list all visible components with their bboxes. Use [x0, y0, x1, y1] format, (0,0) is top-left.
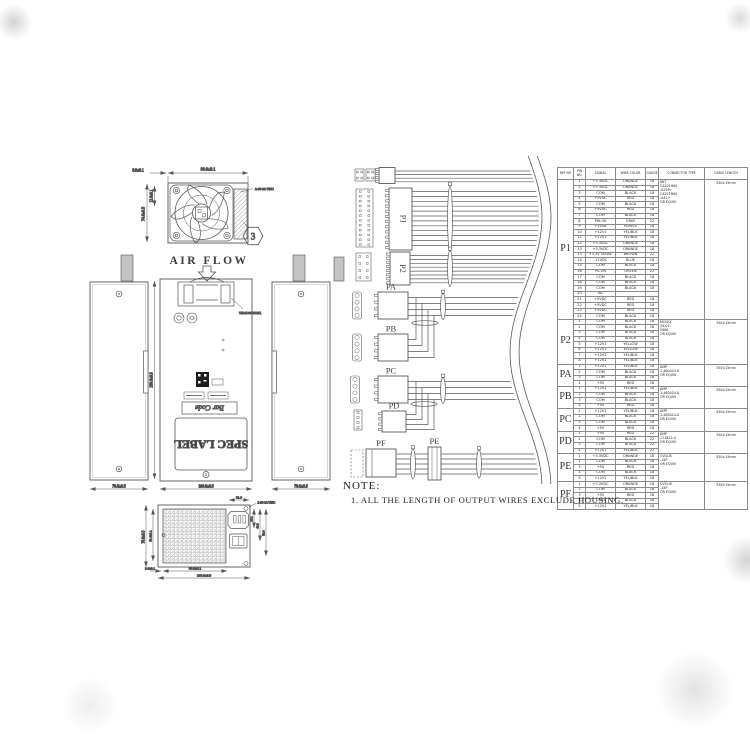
pin-cavity: [372, 177, 374, 179]
pin-cavity: [368, 244, 370, 246]
note-text: 1. ALL THE LENGTH OF OUTPUT WIRES EXCLUD…: [351, 495, 643, 505]
pin-cavity: [353, 391, 357, 395]
cable-tie-knot: [448, 247, 451, 250]
pin-cavity: [357, 411, 359, 413]
pin-cavity: [355, 293, 359, 297]
connector-p1-aux: [379, 168, 395, 184]
ref-cell-PD: PD: [558, 431, 574, 453]
pin-cavity: [359, 205, 361, 207]
connector-front-view: [353, 334, 362, 361]
connector-label-pd: PD: [389, 401, 400, 411]
svg-text:3: 3: [251, 232, 256, 242]
pin-tooth: [386, 200, 390, 202]
pin-cavity: [359, 234, 361, 236]
connector-front-view: [351, 376, 360, 403]
dim-rear-b1: 8.0±0.1: [145, 567, 155, 571]
qr-code: [196, 372, 209, 387]
dim-rear-r3: 52.0: [261, 530, 265, 536]
dim-length: 190.0±0.5: [150, 372, 154, 387]
pin-cavity: [366, 277, 368, 279]
pin-cavity: [359, 200, 361, 202]
barcode-box: Bar Code: [182, 402, 237, 414]
dim-fan-offset: 6.0±0.1: [132, 169, 144, 173]
pin-tooth: [376, 172, 380, 174]
cable-tie: [411, 402, 437, 407]
ac-inlet: [228, 512, 249, 529]
pin-tooth: [386, 246, 390, 248]
ref-cell-PB: PB: [558, 386, 574, 408]
pin-cavity: [356, 177, 358, 179]
vent-grille: [163, 509, 226, 563]
connector-label-p2: P2: [398, 264, 407, 272]
pin-cavity: [368, 220, 370, 222]
pin-tooth: [387, 261, 391, 263]
pin-cavity: [367, 177, 369, 179]
pin-cavity: [359, 239, 361, 241]
vent-hatch-area: [234, 189, 247, 239]
pin-tooth: [375, 301, 379, 303]
safety-mark-circles: [174, 313, 197, 323]
pin-cavity: [355, 342, 359, 346]
dim-rear-h2: 51.6±0.1: [148, 530, 152, 542]
cable-tie: [441, 294, 446, 320]
pin-cavity: [361, 171, 363, 173]
pin-cavity: [357, 426, 359, 428]
flange-stub: [334, 257, 344, 281]
drawing-sheet: 80.0±0.1 6.0±0.1 74.0±0.5 12.0±0.1 2-#6-…: [0, 0, 750, 750]
pin-tooth: [379, 418, 383, 420]
pin-tooth: [375, 378, 379, 380]
loom-break-line: [519, 156, 551, 484]
pin-tooth: [386, 226, 390, 228]
pin-tooth: [375, 385, 379, 387]
pin-tooth: [386, 195, 390, 197]
pin-cavity: [368, 191, 370, 193]
pin-tooth: [386, 205, 390, 207]
cable-length-cell: 350±15mm: [705, 409, 748, 431]
wiring-harness: P1P2PAPBPCPDPFPE: [351, 156, 552, 484]
pin-cavity: [359, 220, 361, 222]
pin-cavity: [353, 398, 357, 402]
barcode-label: Bar Code: [194, 404, 224, 413]
pin-tooth: [375, 294, 379, 296]
cable-tie-knot: [441, 374, 444, 377]
dim-right-width: 70.0±0.5: [294, 484, 308, 488]
pin-tooth: [379, 423, 383, 425]
pin-tooth: [376, 168, 380, 170]
connector-type-cell: CVILUX-15POR EQUIV: [659, 482, 705, 510]
pin-cavity: [368, 215, 370, 217]
pin-cavity: [355, 349, 359, 353]
pin-tooth: [375, 350, 379, 352]
airflow-label: AIR FLOW: [169, 255, 248, 267]
connector-front-view: [354, 410, 362, 430]
connector-front-view: [356, 189, 373, 247]
pin-cavity: [368, 224, 370, 226]
pin-tooth: [379, 428, 383, 430]
connector-type-cell: CVILUX-15POR EQUIV: [659, 454, 705, 482]
fan-screw-note: 2-#6-32 UNC: [255, 187, 274, 191]
pin-tooth: [387, 278, 391, 280]
pin-cavity: [355, 356, 359, 360]
cable-length-cell: 350±15mm: [705, 386, 748, 408]
cable-tie: [448, 186, 453, 252]
pin-tooth: [375, 399, 379, 401]
pin-cavity: [357, 421, 359, 423]
column-header: CONNECTOR TYPE: [659, 168, 705, 180]
ref-cell-P2: P2: [558, 319, 574, 364]
ref-cell-PC: PC: [558, 409, 574, 431]
pin-cavity: [368, 234, 370, 236]
strain-relief-label: TBT3P6SCF4N1: [239, 311, 262, 315]
dim-rear-r2: 43.9: [255, 523, 259, 529]
side-views: TBT3P6SCF4N1: [90, 255, 344, 489]
pin-tooth: [386, 231, 390, 233]
side-view-center: TBT3P6SCF4N1: [160, 278, 261, 482]
pin-tooth: [376, 176, 380, 178]
connector-label-p1: P1: [399, 215, 408, 223]
pin-cavity: [372, 171, 374, 173]
loom-break-line: [510, 156, 542, 484]
pin-tooth: [375, 308, 379, 310]
pin-cell: 18: [646, 504, 659, 510]
pin-cavity: [355, 300, 359, 304]
note-label: NOTE:: [343, 480, 643, 492]
pin-cavity: [359, 256, 361, 258]
pin-cavity: [355, 307, 359, 311]
side-notch: [144, 351, 149, 393]
pin-tooth: [387, 257, 391, 259]
cable-tie-knot: [448, 183, 451, 186]
side-view-right: [272, 282, 330, 480]
pin-tooth: [376, 180, 380, 182]
pin-cavity: [368, 229, 370, 231]
pin-cavity: [359, 215, 361, 217]
column-header: WIRE COLOR: [616, 168, 646, 180]
connector-type-cell: AMP1-480424-0OR EQUIV: [659, 409, 705, 431]
cable-length-cell: 350±15mm: [705, 454, 748, 482]
pin-cavity: [368, 239, 370, 241]
pin-cavity: [359, 263, 361, 265]
pin-cavity: [359, 191, 361, 193]
side-notch: [272, 351, 277, 393]
pin-tooth: [375, 392, 379, 394]
drawing-note: NOTE: 1. ALL THE LENGTH OF OUTPUT WIRES …: [343, 480, 643, 505]
pin-tooth: [387, 274, 391, 276]
connector-pe: [428, 447, 441, 480]
pin-tooth: [375, 315, 379, 317]
connector-pb: [378, 334, 408, 361]
pin-cavity: [367, 171, 369, 173]
connector-pd: [382, 411, 406, 432]
pin-cavity: [368, 210, 370, 212]
connector-pf: [366, 449, 396, 477]
fan-top-view: 80.0±0.1 6.0±0.1 74.0±0.5 12.0±0.1 2-#6-…: [132, 167, 274, 245]
pin-cavity: [361, 177, 363, 179]
pin-tooth: [386, 236, 390, 238]
side-view-dimensions: [90, 281, 330, 489]
connector-front-view: [366, 169, 375, 181]
connector-label-pe: PE: [430, 436, 440, 446]
spec-label: SPEC LABEL: [174, 438, 248, 452]
cable-tie: [441, 378, 446, 404]
pin-cavity: [366, 263, 368, 265]
pin-cavity: [366, 256, 368, 258]
pin-cavity: [353, 384, 357, 388]
connector-type-cell: AMP1-480424-0OR EQUIV: [659, 364, 705, 386]
connector-label-pa: PA: [386, 282, 397, 292]
connector-type-cell: MOLEX39-01-2080OR EQUIV: [659, 319, 705, 364]
pin-tooth: [379, 413, 383, 415]
column-header: GAUGE: [646, 168, 659, 180]
ref-cell-P1: P1: [558, 180, 574, 320]
pin-cavity: [359, 270, 361, 272]
flange-stub: [121, 255, 133, 281]
pin-cavity: [368, 205, 370, 207]
connector-pc: [378, 376, 408, 403]
side-view-left: [90, 282, 148, 480]
dim-fan-inner: 12.0±0.1: [150, 189, 154, 202]
spec-label-box: SPEC LABEL: [174, 418, 248, 470]
cable-length-cell: 350±15mm: [705, 364, 748, 386]
cable-length-cell: 350±15mm: [705, 180, 748, 320]
connector-type-cell: AMP171822-4OR EQUIV: [659, 431, 705, 453]
dim-rear-b3: 100.0±0.5: [197, 574, 211, 578]
pin-cavity: [366, 270, 368, 272]
cable-tie-knot: [411, 446, 414, 449]
pin-cavity: [359, 277, 361, 279]
pin-tooth: [386, 215, 390, 217]
connector-front-view: [355, 169, 364, 181]
connector-front-view: [356, 253, 371, 281]
power-switch: [230, 534, 248, 548]
cable-length-cell: 350±15mm: [705, 482, 748, 510]
pin-tooth: [375, 343, 379, 345]
pin-cavity: [359, 244, 361, 246]
connector-type-cell: AMP1-480424-0OR EQUIV: [659, 386, 705, 408]
pin-cavity: [368, 200, 370, 202]
dim-rear-h: 70.0±0.5: [141, 530, 145, 543]
connector-label-pf: PF: [376, 438, 386, 448]
column-header: REF NO: [558, 168, 574, 180]
connector-type-cell: JWTC4201H00-A24P+C4201H00-A42+OR EQUIV: [659, 180, 705, 320]
cable-length-cell: 350±15mm: [705, 319, 748, 364]
connector-front-view: [353, 292, 362, 319]
dim-rear-top: 31.9: [236, 495, 242, 499]
rear-panel-view: 31.9 2-#6-32 UNC 18.1 43.9 52.0 70.0±0.5…: [141, 495, 275, 578]
connector-label-pb: PB: [386, 324, 397, 334]
pin-cavity: [359, 224, 361, 226]
pin-tooth: [386, 210, 390, 212]
pin-cavity: [357, 416, 359, 418]
pin-tooth: [375, 357, 379, 359]
column-header: PIN NO.: [574, 168, 586, 180]
cable-tie: [411, 449, 416, 479]
cable-tie: [448, 251, 453, 287]
cable-tie-knot: [441, 290, 444, 293]
table-header-row: REF NOPIN NO.SIGNALWIRE COLORGAUGECONNEC…: [558, 168, 748, 180]
connector-front-view: [351, 450, 363, 477]
ref-cell-PA: PA: [558, 364, 574, 386]
connector-label-pc: PC: [386, 366, 397, 376]
flange-stub: [293, 255, 305, 281]
rear-screw-note: 2-#6-32 UNC: [258, 501, 276, 505]
pin-tooth: [375, 336, 379, 338]
pin-cavity: [355, 335, 359, 339]
pin-tooth: [386, 241, 390, 243]
dim-fan-width: 80.0±0.1: [201, 167, 216, 172]
dim-rear-b2: 86.0±0.1: [189, 567, 202, 571]
cable-tie: [477, 450, 482, 478]
pin-cavity: [359, 229, 361, 231]
dim-left-width: 70.0±0.5: [112, 484, 126, 488]
cable-length-cell: 350±15mm: [705, 431, 748, 453]
column-header: SIGNAL: [586, 168, 616, 180]
pin-tooth: [386, 220, 390, 222]
pin-tooth: [386, 189, 390, 191]
ref-cell-PE: PE: [558, 454, 574, 482]
pin-cavity: [356, 171, 358, 173]
dim-rear-r1: 18.1: [249, 516, 253, 522]
pin-cavity: [368, 195, 370, 197]
pin-cavity: [359, 195, 361, 197]
pin-tooth: [387, 253, 391, 255]
pin-tooth: [387, 269, 391, 271]
reg-mark-boxes: [184, 392, 228, 399]
pin-cavity: [353, 377, 357, 381]
pin-assignment-table: REF NOPIN NO.SIGNALWIRE COLORGAUGECONNEC…: [557, 167, 748, 510]
cable-tie-knot: [477, 447, 480, 450]
connector-pa: [378, 292, 408, 319]
pin-cavity: [359, 210, 361, 212]
pin-cavity: [355, 314, 359, 318]
dim-center-width: 100.0±0.5: [198, 484, 213, 488]
pin-tooth: [387, 265, 391, 267]
dim-fan-height: 74.0±0.5: [141, 207, 146, 221]
wire-exit-bracket: [178, 278, 234, 307]
column-header: CABLE LENGTH: [705, 168, 748, 180]
